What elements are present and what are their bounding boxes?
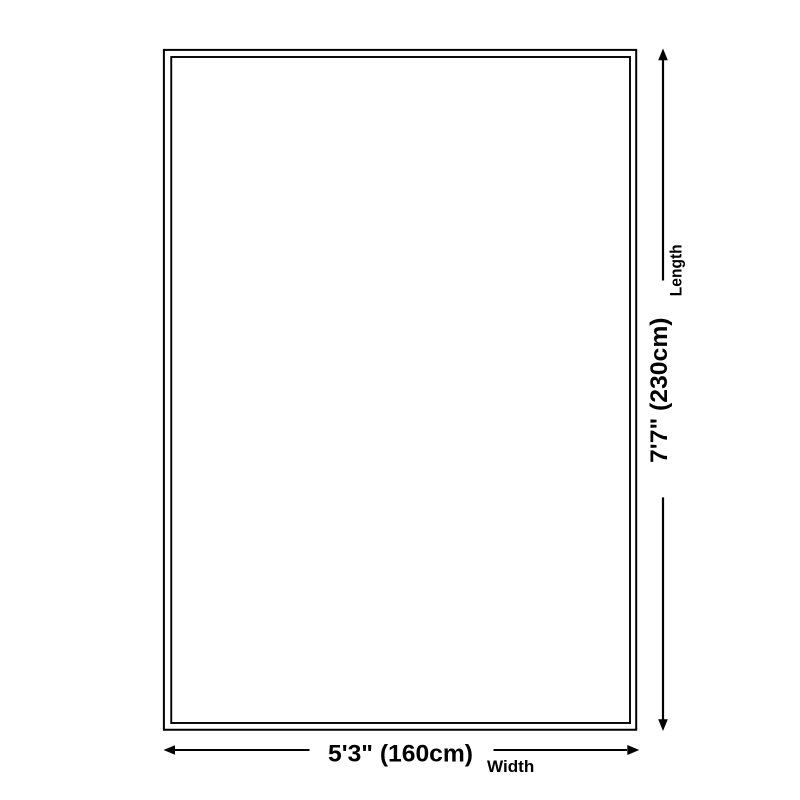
svg-text:7'7" (230cm): 7'7" (230cm) <box>646 317 673 463</box>
svg-text:Width: Width <box>487 758 534 776</box>
svg-text:5'3" (160cm): 5'3" (160cm) <box>328 741 473 768</box>
svg-text:Length: Length <box>668 244 686 296</box>
